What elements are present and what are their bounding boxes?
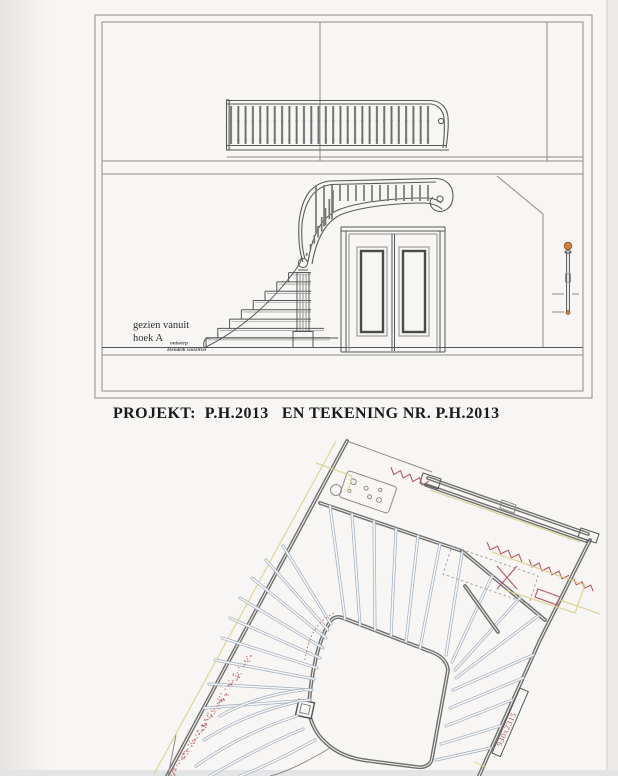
credit-word: ontwerp — [170, 341, 188, 347]
drawing-canvas: gezien vanuit hoek A ontwerp Hendrik van… — [0, 0, 618, 776]
knob-finial — [564, 242, 572, 250]
plate-detail — [339, 470, 397, 513]
stair-steps — [206, 273, 330, 347]
credit-name: Hendrik vanDriel — [166, 347, 207, 353]
floor-plan-drawing: 930x2315 — [154, 441, 600, 776]
stairwell-void — [309, 617, 448, 767]
plan-beam — [420, 473, 599, 543]
scan-left-edge — [0, 0, 50, 776]
upper-balustrade — [227, 100, 450, 150]
handrail-volute — [438, 118, 443, 123]
project-title: PROJEKT: P.H.2013 EN TEKENING NR. P.H.20… — [113, 405, 500, 423]
baluster-detail — [552, 242, 579, 314]
caption-viewed-from: gezien vanuit — [133, 320, 189, 331]
double-door — [341, 227, 445, 352]
elevation-drawing: gezien vanuit hoek A ontwerp Hendrik van… — [95, 15, 592, 398]
scan-right-edge — [607, 0, 618, 776]
elevation-inner-frame — [102, 22, 583, 391]
staircase-elevation — [204, 179, 453, 348]
caption-corner: hoek A — [133, 333, 163, 344]
scanned-page: gezien vanuit hoek A ontwerp Hendrik van… — [0, 0, 618, 776]
scan-bottom-edge — [0, 770, 618, 776]
